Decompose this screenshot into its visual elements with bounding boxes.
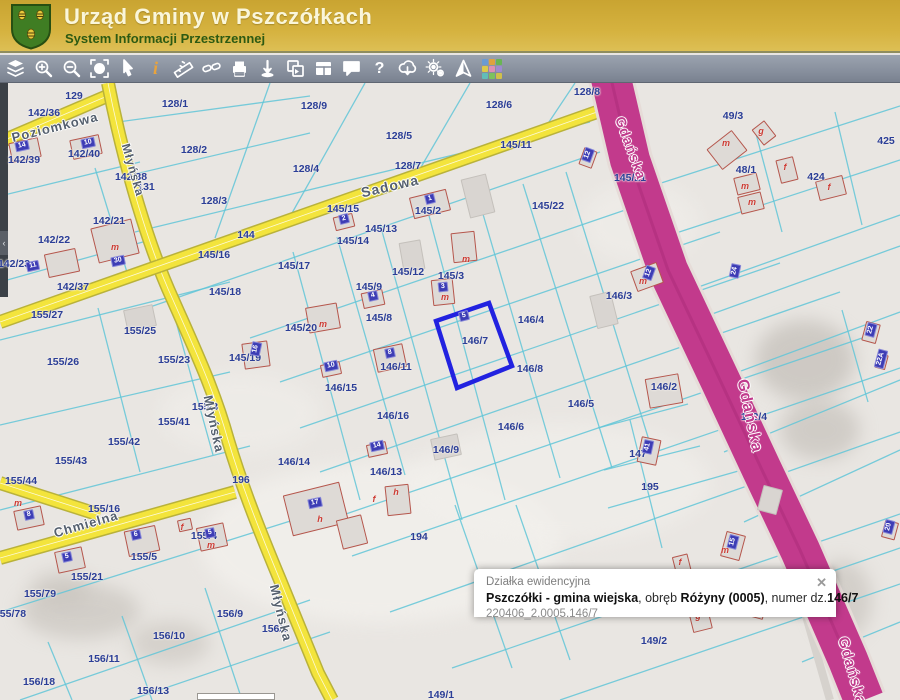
parcel-number-label: 142/40 (68, 148, 100, 160)
parcel-number-label: 144 (237, 229, 255, 241)
parcel-number-label: 128/4 (293, 163, 319, 175)
parcel-number-label: 155/25 (124, 325, 156, 337)
building-type-letter: f (181, 522, 184, 532)
building-type-letter: m (741, 181, 749, 191)
parcel-number-label: 146/2 (651, 381, 677, 393)
building-type-letter: h (317, 514, 323, 524)
parcel-number-label: 156/13 (137, 685, 169, 697)
app-window: Urząd Gminy w Pszczółkach System Informa… (0, 0, 900, 700)
building-type-letter: m (319, 319, 327, 329)
parcel-number-label: 142/37 (57, 281, 89, 293)
building-type-letter: f (784, 162, 787, 172)
legend-icon[interactable] (480, 57, 503, 80)
parcel-number-label: 142/39 (8, 154, 40, 166)
parcel-number-label: 156/18 (23, 676, 55, 688)
parcel-number-label: 195 (641, 481, 659, 493)
parcel-number-label: 142/22 (38, 234, 70, 246)
app-subtitle: System Informacji Przestrzennej (65, 31, 265, 46)
parcel-number-label: 145/22 (532, 200, 564, 212)
address-plate: 5 (204, 527, 216, 539)
parcel-number-label: 155/26 (47, 356, 79, 368)
parcel-number-label: 146/14 (278, 456, 310, 468)
popup-parcel-id: 220406_2.0005.146/7 (486, 608, 824, 620)
parcel-number-label: 128/5 (386, 130, 412, 142)
print-icon[interactable] (228, 57, 251, 80)
pointer-icon[interactable] (116, 57, 139, 80)
zoom-in-icon[interactable] (32, 57, 55, 80)
popup-close-icon[interactable]: ✕ (816, 575, 827, 591)
layout-icon[interactable] (312, 57, 335, 80)
full-extent-icon[interactable] (88, 57, 111, 80)
parcel-number-label: 145/3 (438, 270, 464, 282)
parcel-number-label: 145/11 (500, 139, 532, 151)
parcel-number-label: 155/23 (158, 354, 190, 366)
app-title: Urząd Gminy w Pszczółkach (64, 4, 372, 30)
parcel-number-label: 145/13 (365, 223, 397, 235)
address-plate: 5 (61, 551, 73, 563)
building-type-letter: f (373, 494, 376, 504)
parcel-number-label: 146/16 (377, 410, 409, 422)
parcel-number-label: 145/8 (366, 312, 392, 324)
settings-icon[interactable] (424, 57, 447, 80)
parcel-number-label: 155/78 (0, 608, 26, 620)
parcel-number-label: 156/10 (153, 630, 185, 642)
parcel-number-label: 155/5 (131, 551, 157, 563)
parcel-number-label: 146/8 (517, 363, 543, 375)
popup-parcel-description: Pszczółki - gmina wiejska, obręb Różyny … (486, 591, 824, 605)
measure-icon[interactable] (172, 57, 195, 80)
building-type-letter: m (748, 197, 756, 207)
parcel-number-label: 155/79 (24, 588, 56, 600)
parcel-number-label: 128/6 (486, 99, 512, 111)
layers-icon[interactable] (4, 57, 27, 80)
parcel-number-label: 128/3 (201, 195, 227, 207)
popup-district: Różyny (0005) (681, 591, 765, 605)
marker-download-icon[interactable] (256, 57, 279, 80)
building-type-letter: h (393, 487, 399, 497)
parcel-number-label: 145/18 (209, 286, 241, 298)
parcel-number-label: 128/8 (574, 86, 600, 98)
building-type-letter: m (462, 254, 470, 264)
scale-bar (197, 693, 275, 700)
parcel-number-label: 155/42 (108, 436, 140, 448)
parcel-number-label: 156/11 (88, 653, 120, 665)
parcel-number-label: 142/21 (93, 215, 125, 227)
parcel-number-label: 142/36 (28, 107, 60, 119)
parcel-number-label: 155/44 (5, 475, 37, 487)
zoom-out-icon[interactable] (60, 57, 83, 80)
parcel-info-popup: ✕ Działka ewidencyjna Pszczółki - gmina … (474, 569, 836, 617)
parcel-number-label: 146/9 (433, 444, 459, 456)
help-icon[interactable]: ? (368, 57, 391, 80)
address-plate: 4 (367, 290, 379, 302)
parcel-number-label: 424 (807, 171, 825, 183)
parcel-number-label: 146/3 (606, 290, 632, 302)
parcel-number-label: 425 (877, 135, 895, 147)
parcel-number-label: 149/2 (641, 635, 667, 647)
parcel-number-label: 155/21 (71, 571, 103, 583)
info-icon[interactable]: i (144, 57, 167, 80)
north-arrow-icon[interactable] (452, 57, 475, 80)
parcel-number-label: 145/12 (392, 266, 424, 278)
header-bar: Urząd Gminy w Pszczółkach System Informa… (0, 0, 900, 53)
parcel-number-label: 146/11 (380, 361, 412, 373)
map-toolbar: i? (0, 55, 900, 83)
parcel-number-label: 146/6 (498, 421, 524, 433)
building-type-letter: m (721, 545, 729, 555)
copy-icon[interactable] (284, 57, 307, 80)
coat-of-arms-logo (10, 3, 52, 50)
address-plate: 3 (438, 282, 449, 293)
parcel-number-label: 155/43 (55, 455, 87, 467)
building-type-letter: m (441, 292, 449, 302)
building-type-letter: f (679, 557, 682, 567)
link-icon[interactable] (200, 57, 223, 80)
sidebar-toggle-handle[interactable]: ‹ (0, 231, 8, 255)
parcel-number-label: 149/1 (428, 689, 454, 700)
building-type-letter: g (758, 126, 764, 136)
parcel-number-label: 155/41 (158, 416, 190, 428)
parcel-number-label: 146/4 (518, 314, 544, 326)
parcel-number-label: 196 (232, 474, 250, 486)
parcel-number-label: 129 (65, 90, 83, 102)
address-plate: 6 (130, 529, 142, 541)
parcel-number-label: 128/2 (181, 144, 207, 156)
building-type-letter: m (722, 138, 730, 148)
building-type-letter: m (207, 540, 215, 550)
parcel-number-label: 128/7 (395, 160, 421, 172)
parcel-number-label: 145/14 (337, 235, 369, 247)
popup-parcel-number: 146/7 (827, 591, 858, 605)
parcel-number-label: 156/9 (217, 608, 243, 620)
cloud-download-icon[interactable] (396, 57, 419, 80)
parcel-number-label: 145/17 (278, 260, 310, 272)
parcel-number-label: 145/16 (198, 249, 230, 261)
popup-municipality: Pszczółki - gmina wiejska (486, 591, 638, 605)
parcel-number-label: 146/13 (370, 466, 402, 478)
parcel-number-label: 145/20 (285, 322, 317, 334)
building-type-letter: m (111, 242, 119, 252)
address-plate: 8 (23, 509, 35, 521)
parcel-number-label: 49/3 (723, 110, 743, 122)
parcel-number-label: 48/1 (736, 164, 756, 176)
popup-title: Działka ewidencyjna (486, 576, 824, 588)
parcel-number-label: 155/27 (31, 309, 63, 321)
parcel-number-label: 128/1 (162, 98, 188, 110)
parcel-number-label: 128/9 (301, 100, 327, 112)
parcel-number-label: 146/5 (568, 398, 594, 410)
comment-icon[interactable] (340, 57, 363, 80)
parcel-number-label: 194 (410, 531, 428, 543)
parcel-number-label: 146/7 (462, 335, 488, 347)
parcel-number-label: 146/15 (325, 382, 357, 394)
building-type-letter: f (828, 182, 831, 192)
address-plate: 8 (384, 347, 396, 359)
building-type-letter: m (639, 276, 647, 286)
parcel-number-label: 145/2 (415, 205, 441, 217)
building-type-letter: m (14, 498, 22, 508)
